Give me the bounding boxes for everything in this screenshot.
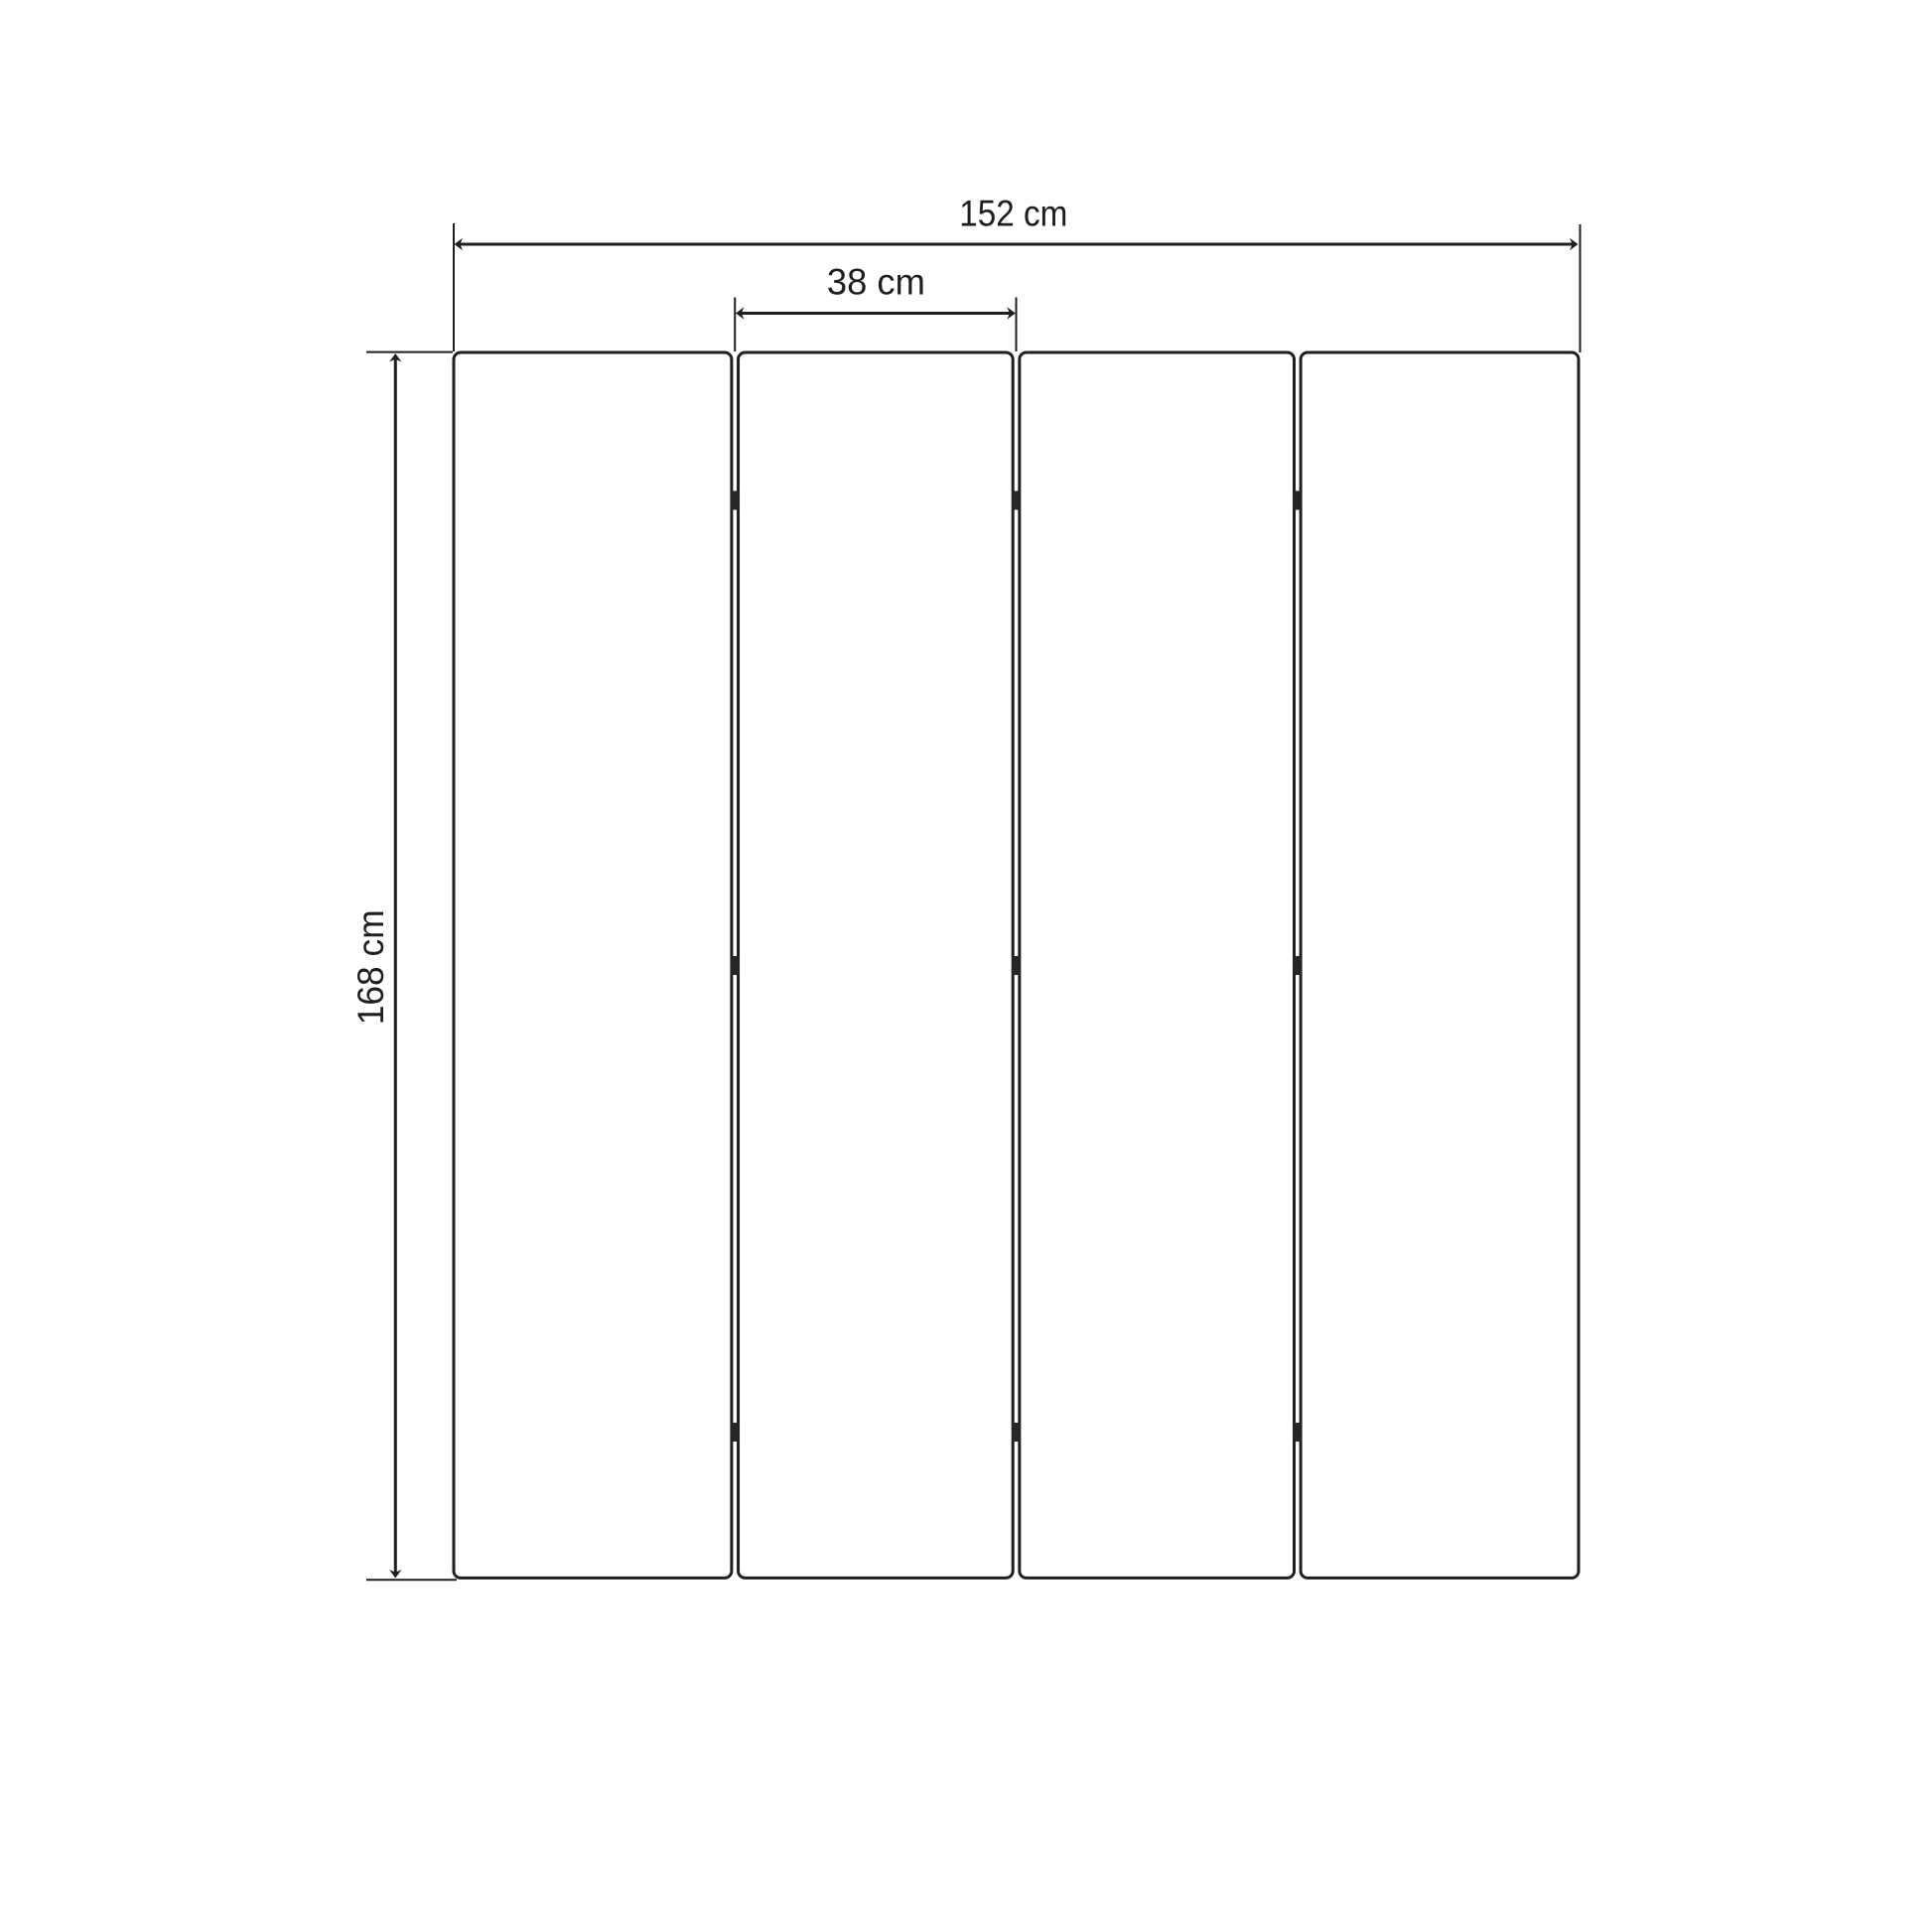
- svg-text:38 cm: 38 cm: [827, 262, 925, 303]
- svg-text:152 cm: 152 cm: [959, 194, 1067, 234]
- svg-text:168 cm: 168 cm: [350, 909, 391, 1025]
